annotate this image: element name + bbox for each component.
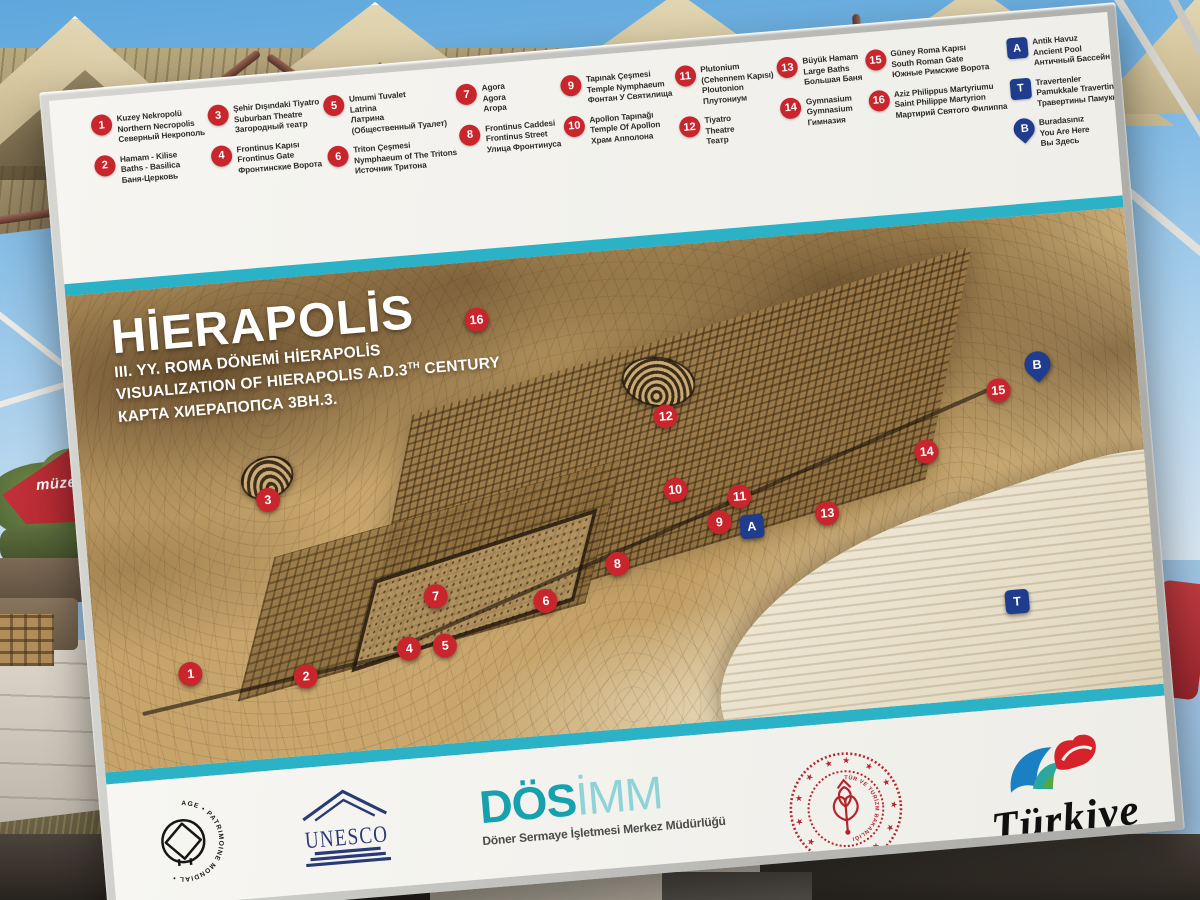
legend-column: 9Tapınak ÇeşmesiTemple NymphaeumФонтан У… [560, 67, 684, 242]
turkiye-tourism-logo: Türkiye [954, 728, 1172, 848]
svg-text:★ ★ ★ ★ ★ ★ ★ ★ ★ ★ ★ ★ ★ ★ ★: ★ ★ ★ ★ ★ ★ ★ ★ ★ ★ ★ ★ ★ ★ ★ ★ [782, 745, 904, 867]
legend-item-6: 6Triton ÇeşmesiNymphaeum of The TritonsИ… [327, 136, 458, 179]
legend-item-label: Aziz Philippus MartyriumuSaint Philippe … [893, 80, 1007, 121]
blue-letter-badge-T: T [1009, 77, 1032, 100]
legend-column: 5Umumi TuvaletLatrinaЛатрина(Общественны… [323, 85, 466, 261]
red-number-badge-9: 9 [560, 74, 583, 97]
red-number-badge-16: 16 [867, 89, 890, 112]
photo-of-hierapolis-map-sign: müzekart 1Kuzey NekropolüNorthern Necrop… [0, 0, 1200, 900]
legend-item-label: Apollon TapınağıTemple Of ApollonХрам Ап… [589, 109, 662, 146]
legend-item-11: 11Plutonium(Cehennem Kapısı)PloutonionПл… [674, 58, 776, 109]
legend-item-13: 13Büyük HamamLarge BathsБольшая Баня [776, 51, 863, 90]
blue-letter-badge-A: A [1006, 37, 1029, 60]
legend-item-T: TTravertenlerPamukkale TravertinesТравер… [1009, 69, 1131, 111]
legend-item-label: Plutonium(Cehennem Kapısı)PloutonionПлут… [700, 59, 776, 107]
red-number-badge-11: 11 [674, 65, 697, 88]
legend-item-15: 15Güney Roma KapısıSouth Roman GateЮжные… [864, 39, 1004, 83]
legend-column: AAntik HavuzAncient PoolАнтичный Бассейн… [1006, 29, 1139, 204]
legend-item-1: 1Kuzey NekropolüNorthern NecropolisСевер… [90, 106, 205, 148]
map-marker-A: A [739, 513, 765, 539]
legend-column: 3Şehir Dışındaki TiyatroSuburban Theatre… [207, 96, 333, 271]
legend-item-label: Triton ÇeşmesiNymphaeum of The TritonsИс… [353, 137, 458, 177]
legend-item-5: 5Umumi TuvaletLatrinaЛатрина(Общественны… [323, 85, 455, 139]
red-number-badge-10: 10 [563, 115, 586, 138]
dosimm-logo: DÖSİMM Döner Sermaye İşletmesi Merkez Mü… [478, 763, 732, 848]
red-number-badge-1: 1 [90, 114, 113, 137]
map-illustration: HİERAPOLİS III. YY. ROMA DÖNEMİ HİERAPOL… [65, 207, 1163, 772]
red-number-badge-6: 6 [327, 145, 350, 168]
legend-item-7: 7AgoraAgoraАгора [455, 76, 558, 117]
red-number-badge-4: 4 [210, 144, 233, 167]
legend-item-3: 3Şehir Dışındaki TiyatroSuburban Theatre… [207, 96, 322, 138]
legend-item-label: Kuzey NekropolüNorthern NecropolisСеверн… [116, 107, 205, 146]
legend-item-label: Güney Roma KapısıSouth Roman GateЮжные Р… [890, 41, 990, 81]
dosimm-bold: DÖS [477, 773, 578, 833]
legend-item-label: Hamam - KiliseBaths - BasilicaБаня-Церко… [120, 150, 182, 186]
legend-item-label: Büyük HamamLarge BathsБольшая Баня [802, 52, 863, 88]
legend-item-label: BuradasınızYou Are HereВы Здесь [1039, 114, 1091, 150]
legend-item-label: Antik HavuzAncient PoolАнтичный Бассейн [1032, 31, 1111, 69]
legend-item-2: 2Hamam - KiliseBaths - BasilicaБаня-Церк… [94, 146, 209, 188]
legend-item-label: TiyatroTheatreТеатр [704, 114, 735, 148]
legend-item-14: 14GymnasiumGymnasiumГимназия [779, 91, 866, 130]
legend-item-label: Umumi TuvaletLatrinaЛатрина(Общественный… [349, 87, 448, 137]
legend-item-10: 10Apollon TapınağıTemple Of ApollonХрам … [563, 107, 676, 149]
legend-column: 1Kuzey NekropolüNorthern NecropolisСевер… [90, 106, 216, 281]
legend-item-8: 8Frontinus CaddesiFrontinus StreetУлица … [459, 117, 562, 158]
red-number-badge-2: 2 [94, 154, 117, 177]
ministry-of-culture-seal: ★ ★ ★ ★ ★ ★ ★ ★ ★ ★ ★ ★ ★ ★ ★ ★ TÜRKİYE … [782, 745, 909, 872]
red-number-badge-12: 12 [678, 115, 701, 138]
legend-item-label: Şehir Dışındaki TiyatroSuburban TheatreЗ… [233, 97, 322, 136]
legend-item-label: GymnasiumGymnasiumГимназия [805, 93, 853, 128]
legend-column: 13Büyük HamamLarge BathsБольшая Баня14Gy… [776, 51, 874, 223]
legend-item-4: 4Frontinus KapısıFrontinus GateФронтинск… [210, 137, 325, 179]
red-number-badge-7: 7 [455, 83, 478, 106]
base-block [662, 872, 812, 900]
legend-column: 11Plutonium(Cehennem Kapısı)PloutonionПл… [674, 58, 786, 232]
red-number-badge-15: 15 [864, 49, 887, 72]
legend-item-12: 12TiyatroTheatreТеатр [678, 109, 779, 150]
legend-item-B: BBuradasınızYou Are HereВы Здесь [1013, 109, 1135, 151]
red-number-badge-14: 14 [779, 96, 802, 119]
legend-item-label: TravertenlerPamukkale TravertinesТраверт… [1035, 70, 1131, 109]
wooden-crate [0, 614, 54, 666]
legend-column: 7AgoraAgoraАгора8Frontinus CaddesiFronti… [455, 76, 569, 250]
map-marker-T: T [1004, 589, 1030, 615]
legend-item-9: 9Tapınak ÇeşmesiTemple NymphaeumФонтан У… [560, 67, 673, 109]
legend-item-label: Frontinus KapısıFrontinus GateФронтински… [236, 138, 322, 176]
legend-item-label: Tapınak ÇeşmesiTemple NymphaeumФонтан У … [586, 68, 673, 106]
red-number-badge-13: 13 [776, 56, 799, 79]
legend-item-label: AgoraAgoraАгора [481, 82, 507, 115]
svg-text:DÜNYA MİRASI • WORLD HERITAGE: DÜNYA MİRASI • WORLD HERITAGE • PATRIMOI… [134, 792, 228, 887]
legend-item-A: AAntik HavuzAncient PoolАнтичный Бассейн [1006, 29, 1128, 71]
blue-letter-badge-B: B [1009, 114, 1039, 144]
sign-board: 1Kuzey NekropolüNorthern NecropolisСевер… [49, 12, 1175, 900]
legend-item-label: Frontinus CaddesiFrontinus StreetУлица Ф… [485, 118, 562, 156]
red-number-badge-8: 8 [459, 123, 482, 146]
legend-item-16: 16Aziz Philippus MartyriumuSaint Philipp… [867, 79, 1007, 123]
legend-column: 15Güney Roma KapısıSouth Roman GateЮжные… [864, 39, 1016, 216]
dosimm-light: İMM [574, 766, 664, 825]
world-heritage-logo: DÜNYA MİRASI • WORLD HERITAGE • PATRIMOI… [134, 792, 233, 891]
red-number-badge-3: 3 [207, 104, 230, 127]
unesco-logo: UNESCO [284, 782, 408, 873]
red-number-badge-5: 5 [323, 94, 346, 117]
sign-board-frame: 1Kuzey NekropolüNorthern NecropolisСевер… [39, 2, 1185, 900]
